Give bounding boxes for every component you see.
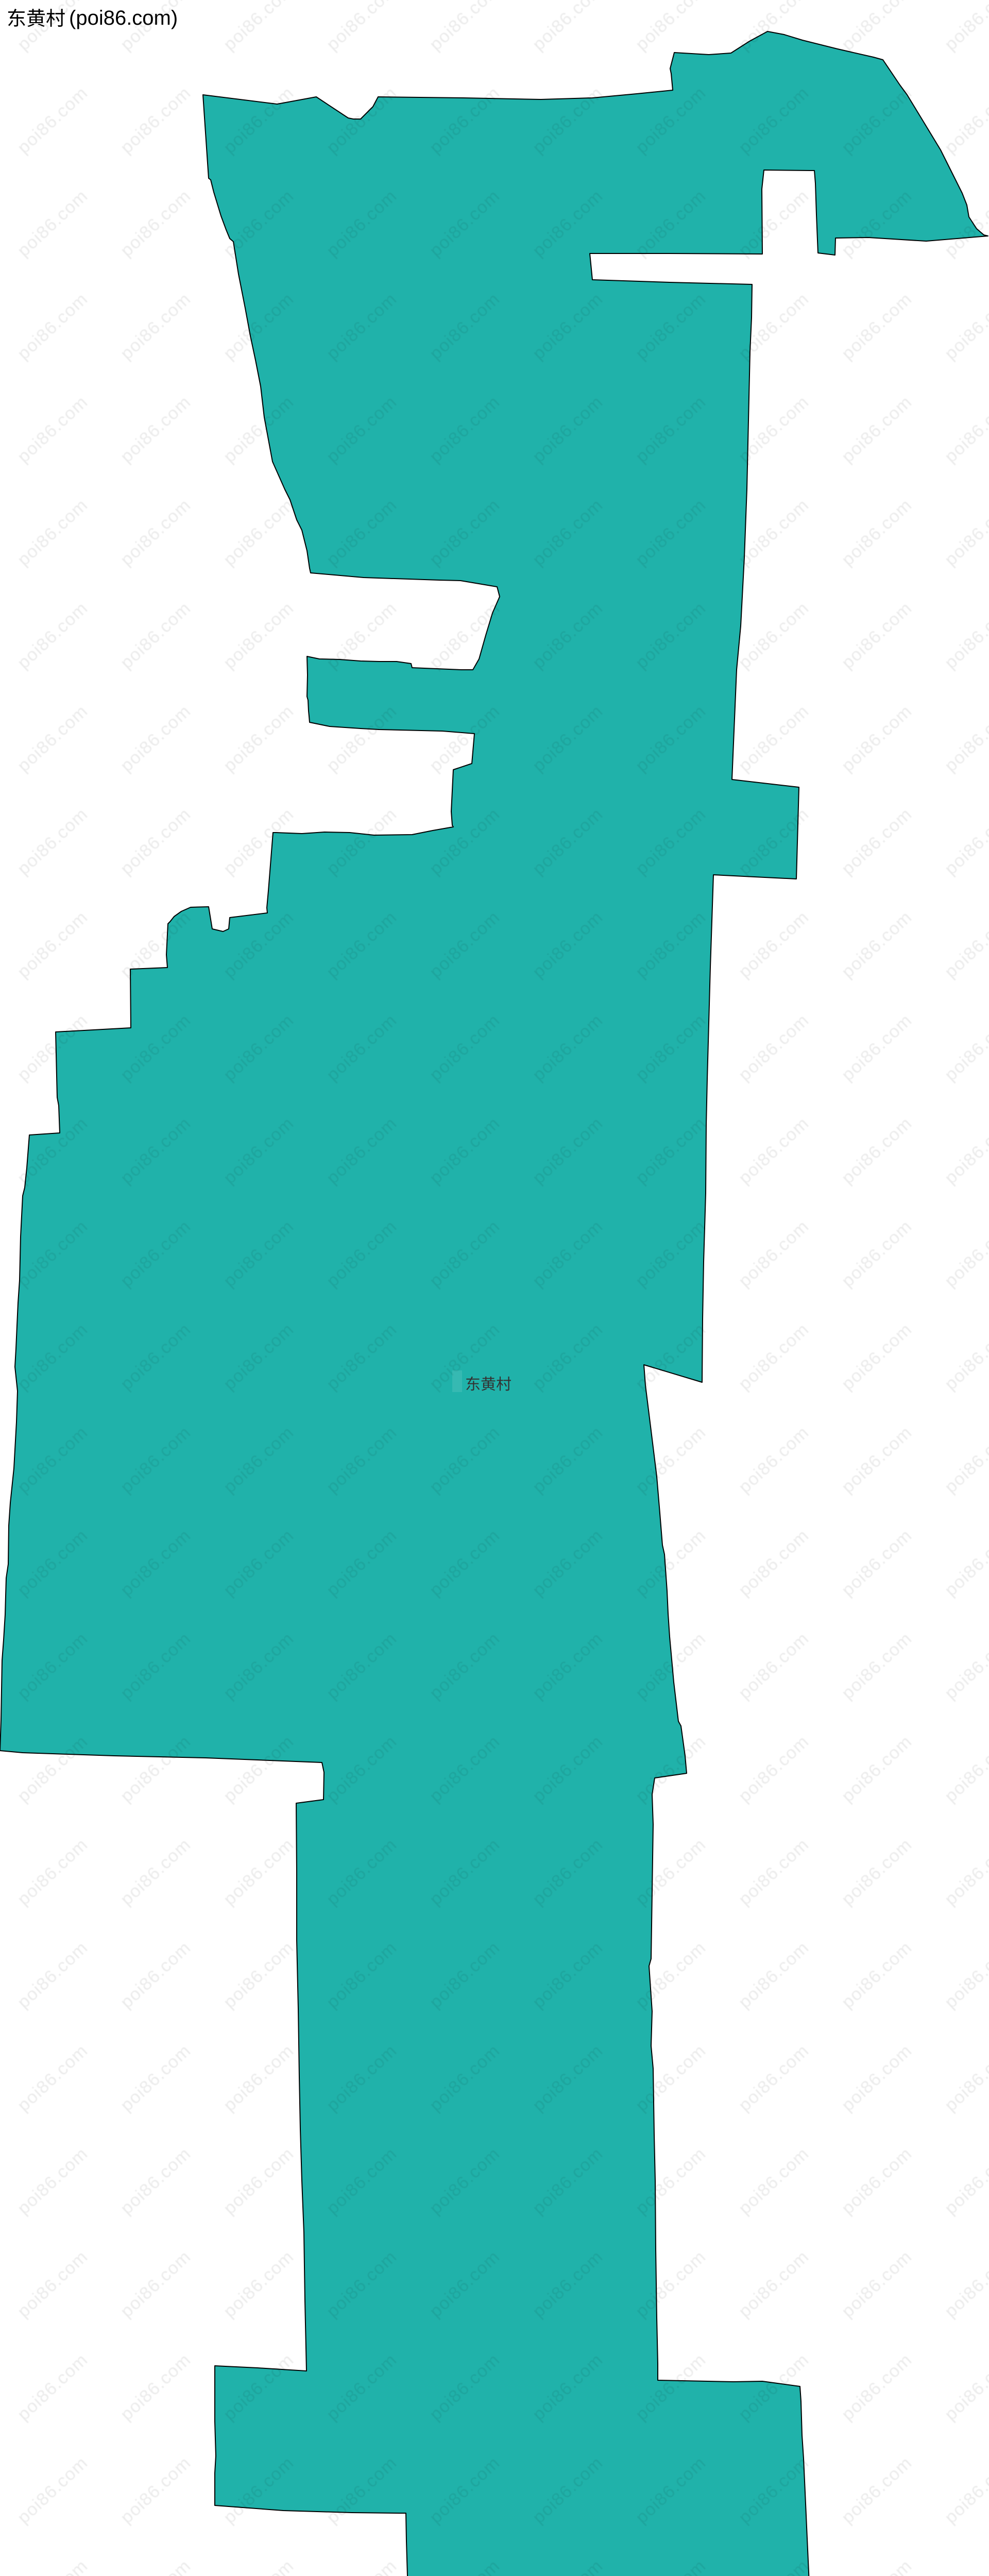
- svg-text:(poi86.com): (poi86.com): [69, 7, 178, 29]
